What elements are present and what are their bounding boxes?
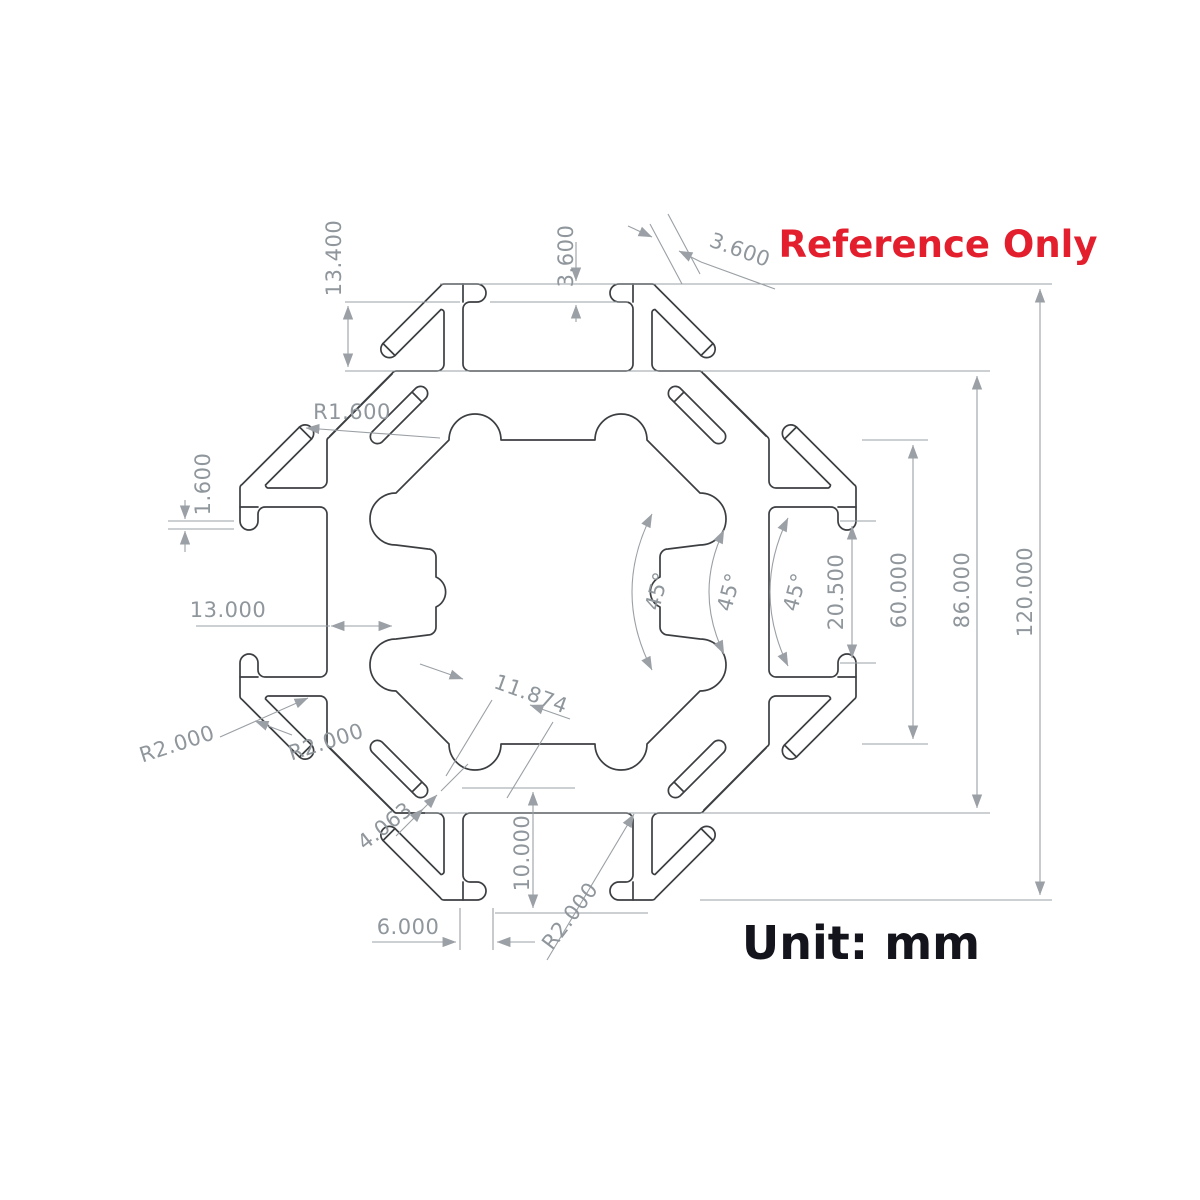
dim-label-floor-depth: 10.000 <box>510 815 534 891</box>
reference-only-watermark: Reference Only <box>779 223 1098 266</box>
t-slot-face-path <box>330 284 766 436</box>
dim-ext-1600 <box>168 521 234 529</box>
dim-label-radius-bottom: R2.000 <box>537 878 603 955</box>
dim-ext-13400 <box>345 302 460 371</box>
dim-label-web-thickness: 13.000 <box>190 598 266 622</box>
dim-label-across-tabs: 60.000 <box>887 552 911 628</box>
dim-leader-r2000-left <box>220 698 308 737</box>
dim-label-lip-step: 1.600 <box>191 453 215 516</box>
unit-note: Unit: mm <box>742 916 980 970</box>
dim-line-4063-b <box>413 795 437 819</box>
dim-label-across-flats: 86.000 <box>950 552 974 628</box>
dimension-annotations: 13.400 3.600 3.600 R1.600 1.600 13.000 4… <box>136 214 1052 960</box>
dim-label-slot-span: 20.500 <box>824 554 848 630</box>
dim-label-wing-height: 13.400 <box>322 220 346 296</box>
dim-line-3600d-b <box>679 251 701 262</box>
corner-slot-top-right <box>668 386 725 443</box>
dim-label-angle-c: 45° <box>778 570 811 614</box>
dim-line-3600d-a <box>628 226 652 237</box>
dim-ext-11874 <box>446 700 553 798</box>
dim-label-diagonal-width: 11.874 <box>491 670 571 719</box>
dim-label-slot-mouth: 3.600 <box>706 228 773 272</box>
dim-ext-3600d <box>650 214 700 284</box>
dim-label-angle-b: 45° <box>712 570 745 614</box>
dim-label-overall-size: 120.000 <box>1013 547 1037 637</box>
dim-label-lip-width: 6.000 <box>377 915 440 939</box>
dim-label-corner-radius: R1.600 <box>313 400 391 424</box>
dim-label-hook-slot: 4.063 <box>353 797 417 854</box>
dim-label-lip-thickness: 3.600 <box>554 225 578 288</box>
dim-ext-6000 <box>460 908 493 950</box>
dim-ext-3600v <box>440 284 1052 302</box>
dim-label-angle-a: 45° <box>640 569 673 613</box>
dim-label-radius-left: R2.000 <box>136 721 217 768</box>
dim-ext-10000 <box>462 788 648 913</box>
center-bore-path <box>370 414 726 770</box>
dim-label-radius-mid: R2.000 <box>285 719 366 766</box>
dim-leader-r1600 <box>306 428 440 438</box>
drawing-page: 13.400 3.600 3.600 R1.600 1.600 13.000 4… <box>0 0 1200 1200</box>
dim-line-11874-a <box>420 664 463 679</box>
corner-slot-bottom-right <box>668 740 725 797</box>
dim-line-4063-c <box>441 764 468 791</box>
corner-slot-bottom-left <box>370 740 427 797</box>
profile-drawing: 13.400 3.600 3.600 R1.600 1.600 13.000 4… <box>0 0 1200 1200</box>
extrusion-profile-outline <box>240 284 856 900</box>
dim-leader-r2000-mid <box>255 721 292 735</box>
